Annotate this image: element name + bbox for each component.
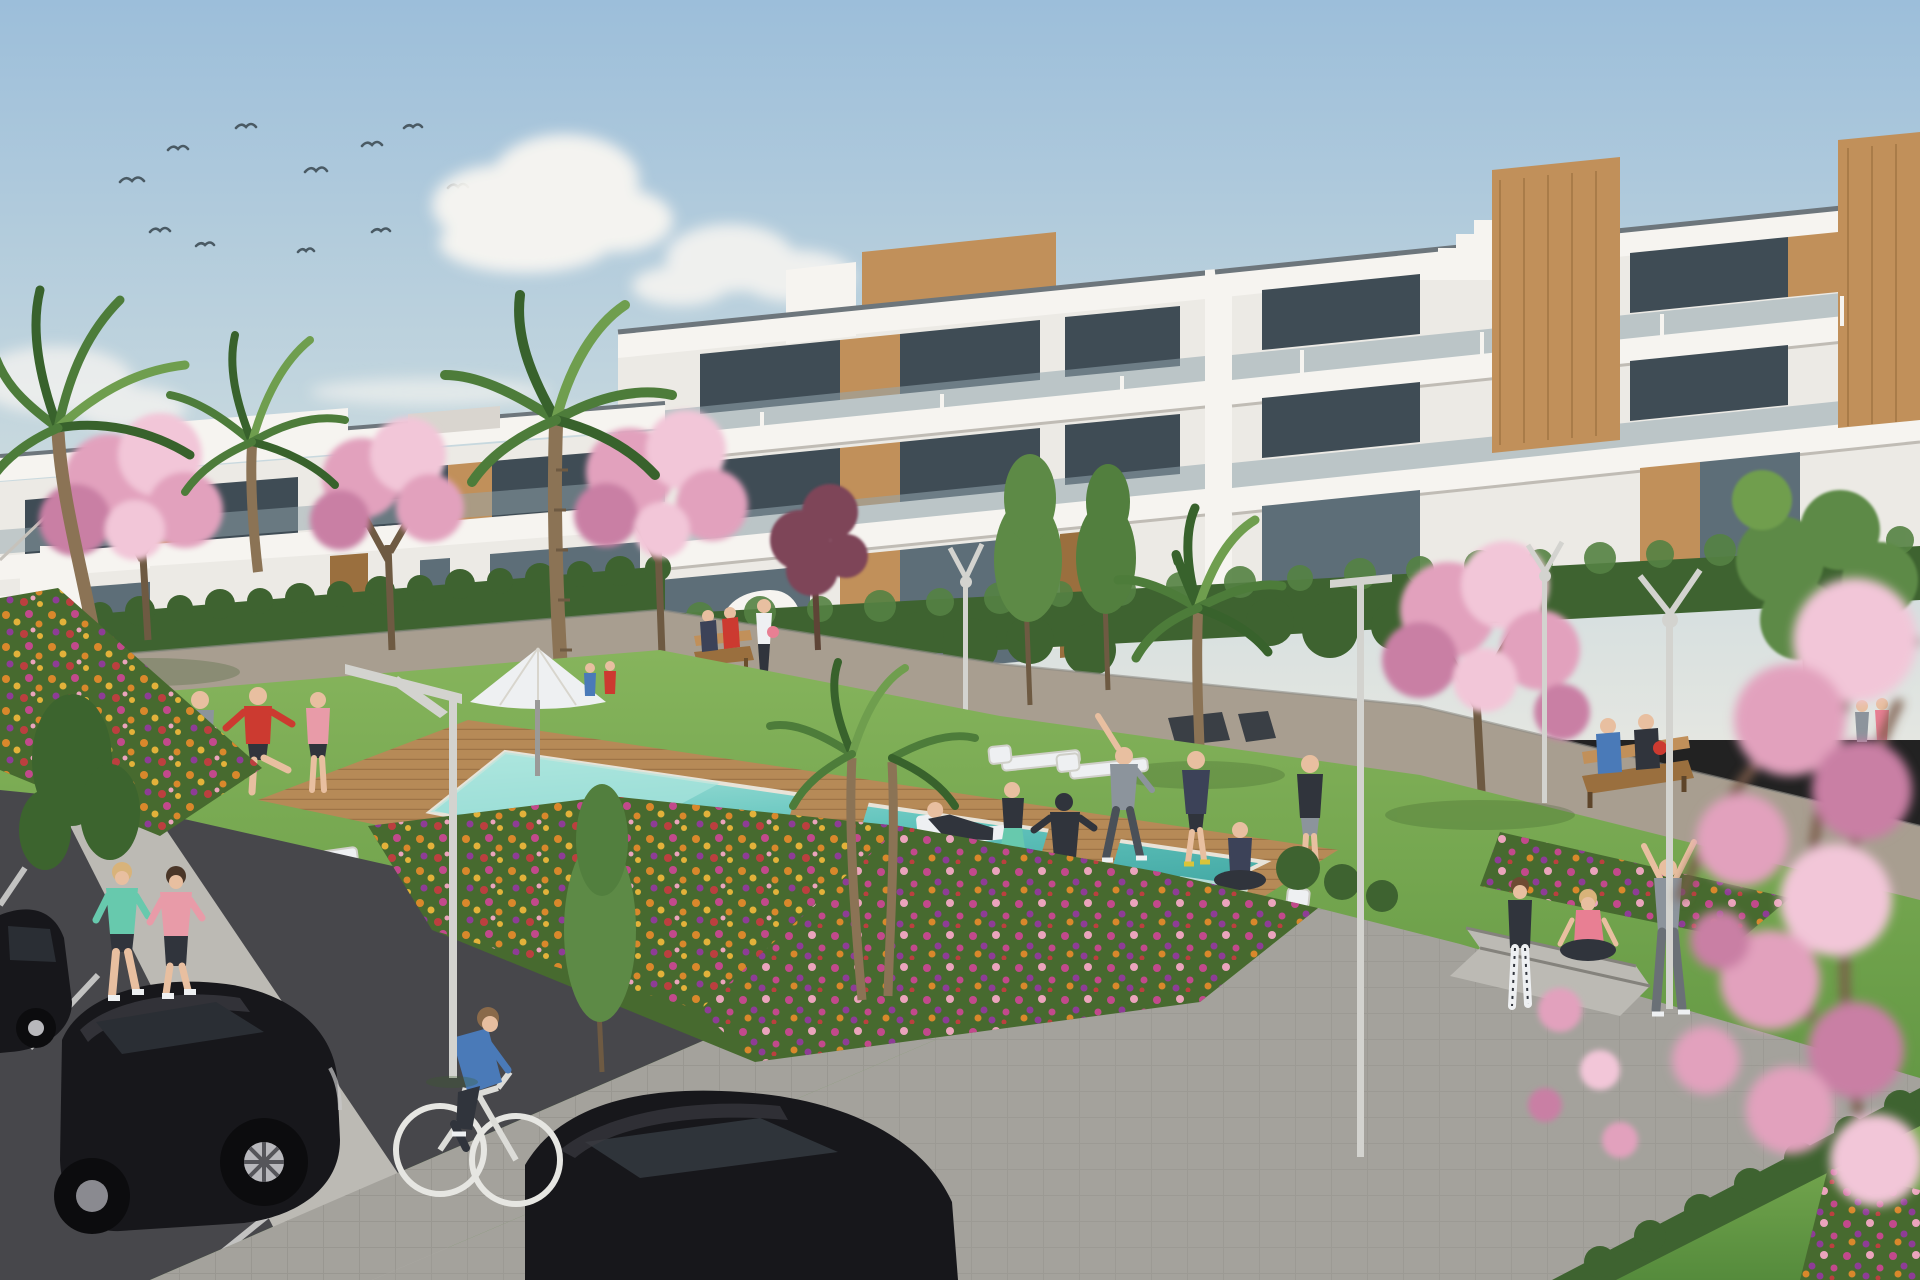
- wood-tower: [1838, 132, 1920, 428]
- car-parked-main: [54, 982, 340, 1234]
- scene-apartment-complex: [0, 0, 1920, 1280]
- wood-tower: [1492, 157, 1620, 453]
- render-viewport: [0, 0, 1920, 1280]
